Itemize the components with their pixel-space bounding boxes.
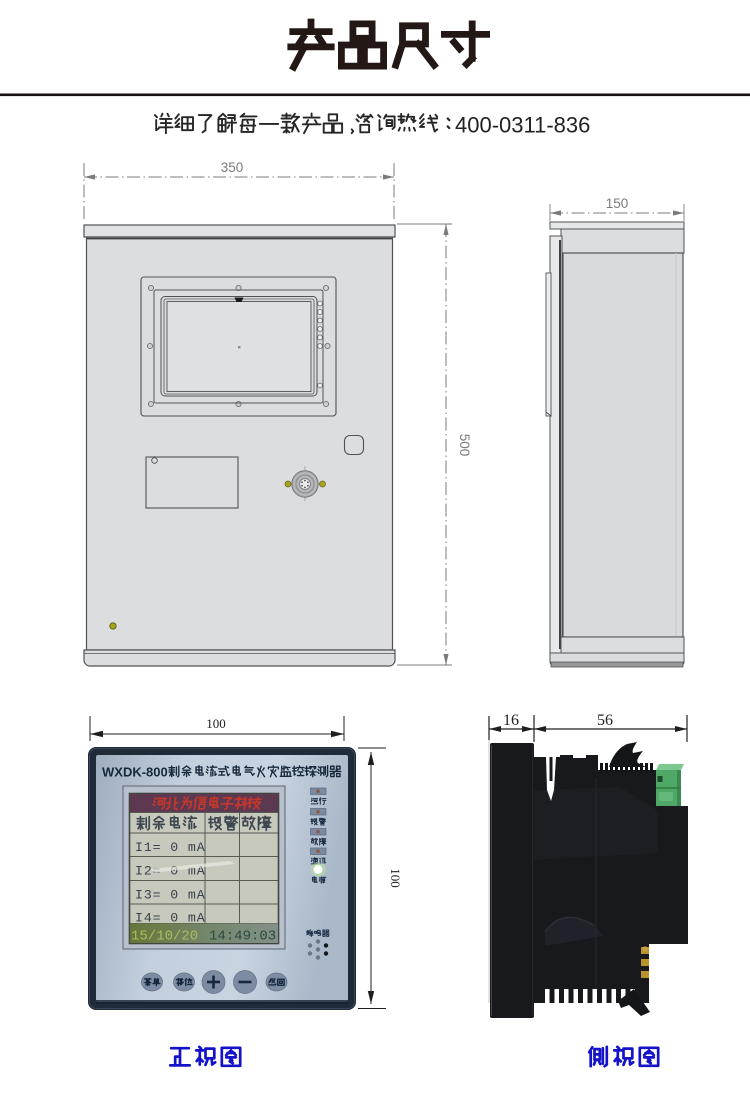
svg-text:I3= 0 mA: I3= 0 mA — [135, 888, 206, 903]
svg-text:100: 100 — [388, 868, 403, 888]
svg-text:100: 100 — [206, 716, 226, 731]
svg-text:I1= 0 mA: I1= 0 mA — [135, 840, 206, 855]
svg-text:350: 350 — [221, 160, 244, 175]
svg-text:14:49:03: 14:49:03 — [209, 929, 276, 945]
svg-text:400-0311-836: 400-0311-836 — [455, 113, 590, 138]
svg-text:WXDK-800: WXDK-800 — [102, 765, 168, 780]
svg-text:15/10/20: 15/10/20 — [131, 929, 198, 945]
svg-text:I4= 0 mA: I4= 0 mA — [135, 911, 206, 926]
svg-text:150: 150 — [606, 196, 629, 211]
svg-text:56: 56 — [597, 712, 613, 729]
svg-text:16: 16 — [503, 712, 519, 729]
svg-text:500: 500 — [457, 434, 472, 457]
